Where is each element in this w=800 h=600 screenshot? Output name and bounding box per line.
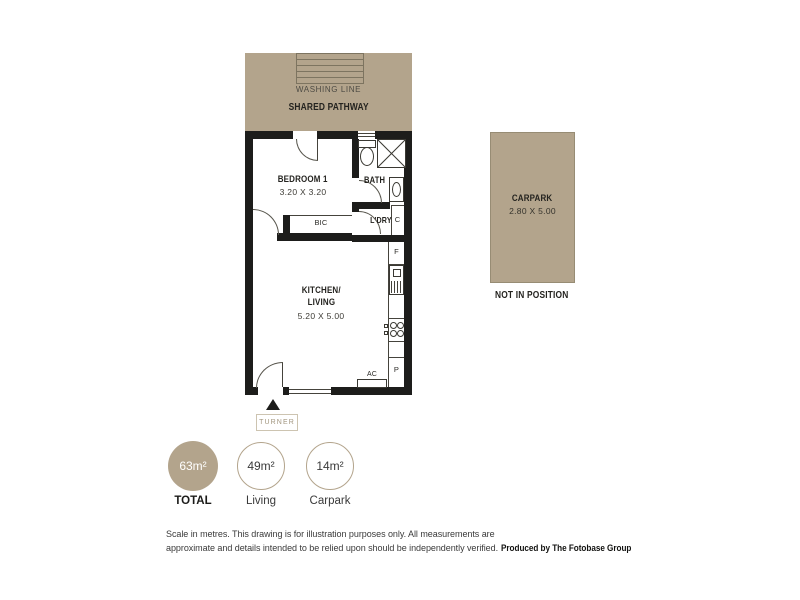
ac-unit-icon: [357, 379, 387, 388]
living-area-value: 49m²: [247, 459, 274, 473]
window-line: [358, 133, 375, 134]
bedroom-door-arc: [296, 139, 318, 161]
window-line: [358, 136, 375, 137]
floorplan-page: WASHING LINE SHARED PATHWAY: [0, 0, 800, 600]
kitchen-living-label-1: KITCHEN/: [253, 285, 389, 296]
sink-hatch: [397, 281, 398, 293]
wall-segment: [283, 215, 290, 241]
pantry-label: P: [389, 365, 404, 374]
turner-label: TURNER: [259, 419, 295, 426]
carpark-label: CARPARK: [491, 193, 574, 204]
total-area-value: 63m²: [179, 459, 206, 473]
bedroom-hall-door-arc: [253, 209, 279, 235]
wall-segment: [352, 202, 359, 212]
entry-door-arc: [256, 362, 283, 388]
wall-segment: [245, 387, 258, 395]
disclaimer-line2: approximate and details intended to be r…: [166, 543, 498, 553]
cooktop-knob-icon: [384, 331, 388, 335]
wall-segment: [245, 131, 253, 395]
washing-line-icon: [296, 53, 364, 84]
counter-line: [388, 318, 404, 319]
cupboard-label: C: [391, 215, 404, 224]
sink-hatch: [400, 281, 401, 293]
not-in-position-label: NOT IN POSITION: [467, 290, 597, 301]
disclaimer: Scale in metres. This drawing is for ill…: [166, 527, 666, 556]
sink-bowl-icon: [393, 269, 401, 277]
producer-credit: Produced by The Fotobase Group: [501, 542, 631, 556]
disclaimer-line1: Scale in metres. This drawing is for ill…: [166, 529, 495, 539]
kitchen-living-dims: 5.20 X 5.00: [253, 311, 389, 321]
carpark-area-label: Carpark: [306, 495, 354, 507]
wall-segment: [331, 387, 412, 395]
window-line: [289, 393, 331, 394]
wall-segment: [404, 131, 412, 395]
sink-hatch: [391, 281, 392, 293]
cooktop-burner-icon: [397, 330, 404, 337]
window-line: [289, 389, 331, 390]
area-badge-living: 49m²: [237, 442, 285, 490]
counter-line: [388, 341, 404, 342]
shower-icon: [377, 139, 406, 168]
bath-label: BATH: [357, 175, 393, 185]
sink-hatch: [394, 281, 395, 293]
living-area-label: Living: [237, 495, 285, 507]
wall-segment: [317, 131, 358, 139]
carpark-area-value: 14m²: [316, 459, 343, 473]
toilet-bowl-icon: [360, 147, 374, 166]
fridge-label: F: [389, 247, 404, 256]
bic-line: [290, 215, 352, 216]
cupboard-line: [391, 205, 404, 206]
area-badge-total: 63m²: [168, 441, 218, 491]
cooktop-burner-icon: [390, 330, 397, 337]
bedroom-label: BEDROOM 1: [253, 174, 353, 185]
total-area-label: TOTAL: [163, 495, 223, 507]
carpark-dims: 2.80 X 5.00: [491, 206, 574, 216]
wall-segment: [352, 235, 412, 242]
kitchen-living-label-2: LIVING: [253, 297, 389, 308]
cooktop-burner-icon: [397, 322, 404, 329]
area-badge-carpark: 14m²: [306, 442, 354, 490]
washing-line-label: WASHING LINE: [245, 85, 412, 94]
carpark-area: CARPARK 2.80 X 5.00: [490, 132, 575, 283]
ac-label: AC: [362, 371, 382, 378]
entry-tag: TURNER: [256, 414, 298, 431]
entry-arrow-icon: [266, 399, 280, 410]
bedroom-dims: 3.20 X 3.20: [253, 187, 353, 197]
bic-label: BIC: [290, 218, 352, 227]
basin-bowl-icon: [392, 182, 401, 197]
cooktop-knob-icon: [384, 324, 388, 328]
counter-line: [388, 357, 404, 358]
shared-pathway-area: WASHING LINE SHARED PATHWAY: [245, 53, 412, 131]
wall-segment: [359, 202, 390, 209]
cooktop-burner-icon: [390, 322, 397, 329]
shared-pathway-label: SHARED PATHWAY: [245, 102, 412, 113]
